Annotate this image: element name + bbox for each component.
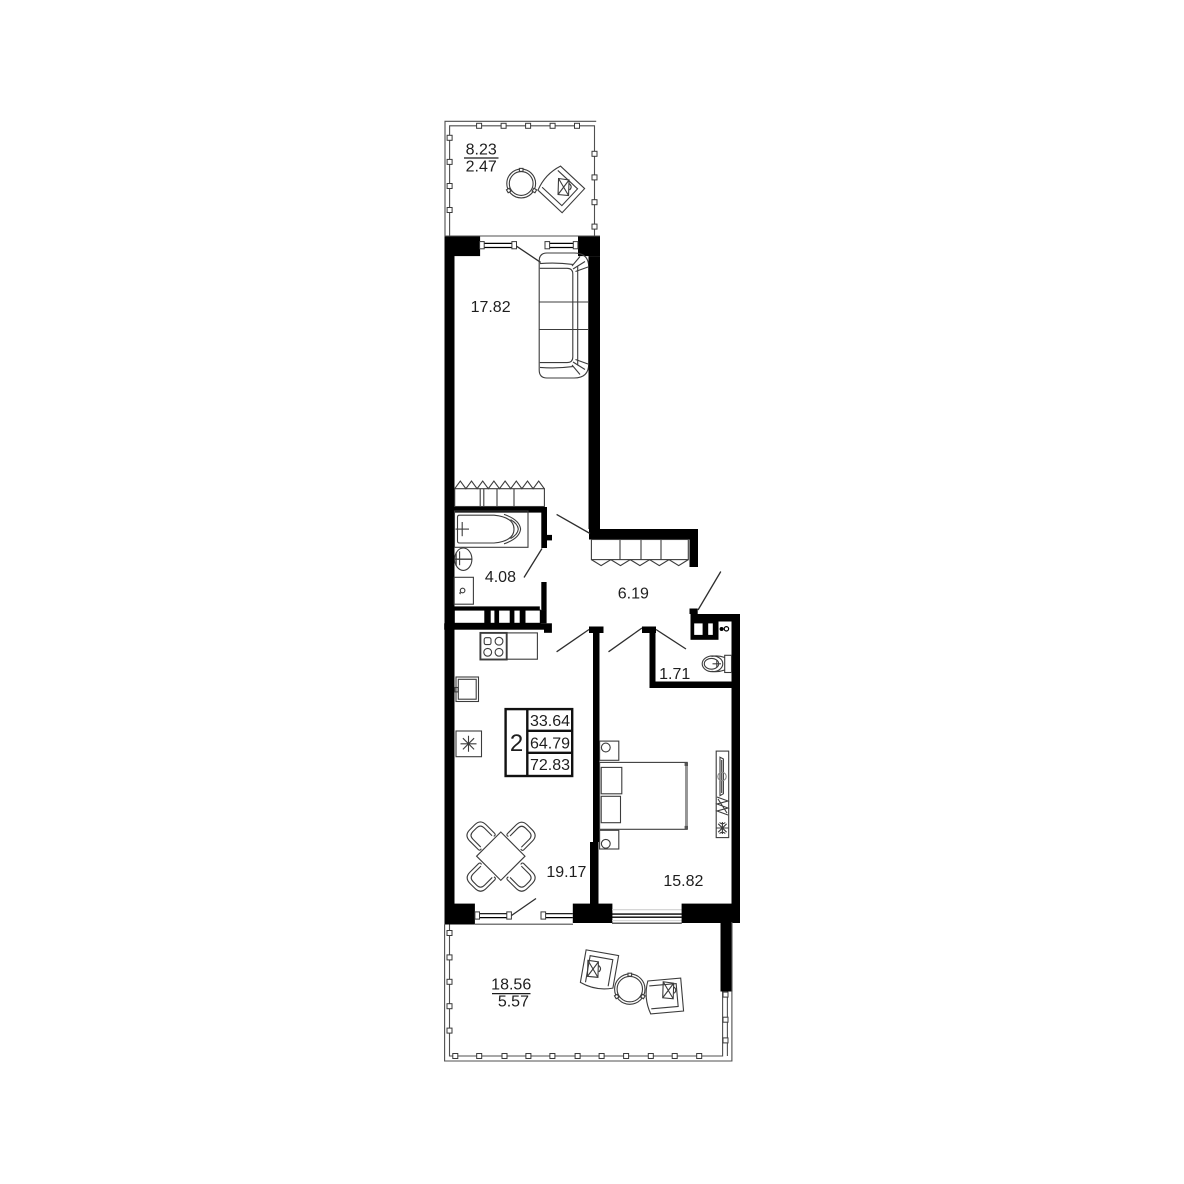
svg-text:6.19: 6.19 [618, 585, 649, 602]
svg-text:18.56: 18.56 [491, 976, 531, 993]
svg-text:4.08: 4.08 [485, 569, 516, 586]
svg-text:2.47: 2.47 [466, 158, 497, 175]
svg-text:8.23: 8.23 [466, 141, 497, 158]
svg-text:19.17: 19.17 [546, 864, 586, 881]
svg-text:64.79: 64.79 [530, 735, 570, 752]
svg-text:72.83: 72.83 [530, 757, 570, 774]
svg-text:5.57: 5.57 [498, 994, 529, 1011]
svg-text:17.82: 17.82 [471, 299, 511, 316]
svg-text:33.64: 33.64 [530, 713, 570, 730]
svg-text:2: 2 [510, 730, 523, 757]
svg-text:1.71: 1.71 [659, 666, 690, 683]
svg-text:15.82: 15.82 [663, 873, 703, 890]
